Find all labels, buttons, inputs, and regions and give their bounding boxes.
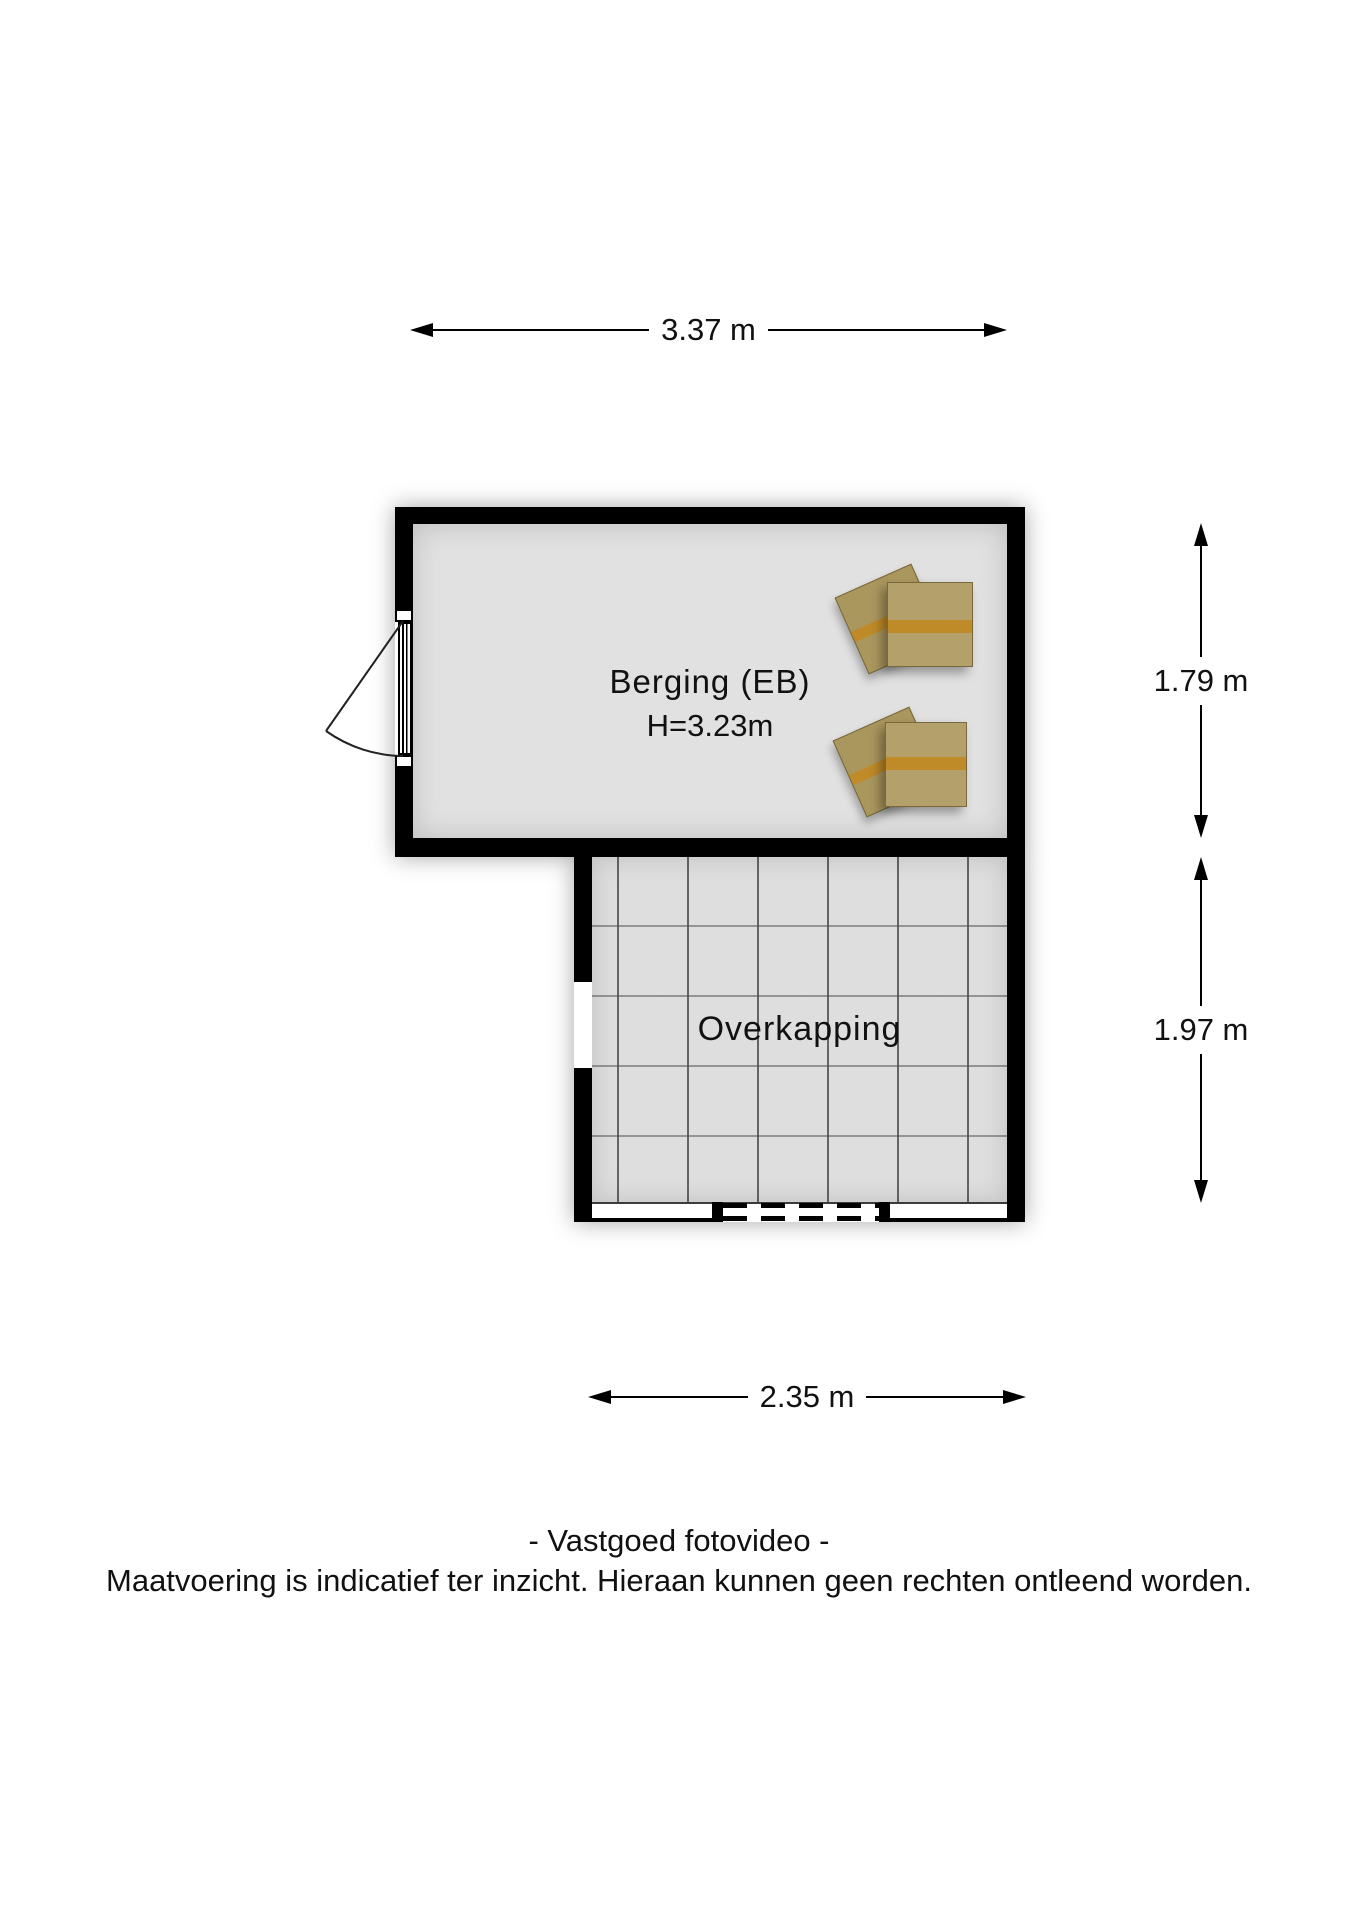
door-swing-arc-icon (250, 590, 420, 770)
arrowhead-up-icon (1194, 523, 1208, 546)
wall-right (1007, 507, 1025, 1222)
berging-room-label: Berging (EB) (413, 662, 1007, 702)
wall-top (395, 507, 1025, 524)
dimension-right-lower: 1.97 m (1140, 857, 1262, 1203)
berging-height-label: H=3.23m (413, 708, 1007, 744)
dimension-label-bottom: 2.35 m (748, 1381, 867, 1413)
open-edge-line-left (592, 1218, 716, 1222)
box-strap (886, 757, 966, 770)
footer: - Vastgoed fotovideo - Maatvoering is in… (0, 1521, 1358, 1601)
dimension-top: 3.37 m (410, 314, 1007, 346)
arrowhead-down-icon (1194, 1180, 1208, 1203)
arrowhead-left-icon (588, 1390, 611, 1404)
box-strap (888, 620, 972, 632)
open-edge-line-right (886, 1218, 1007, 1222)
edge-post-left (712, 1202, 723, 1222)
arrowhead-down-icon (1194, 815, 1208, 838)
wall-overkapping-left-lower (574, 1068, 592, 1222)
dimension-right-upper: 1.79 m (1140, 523, 1262, 838)
dimension-line (1200, 1054, 1202, 1180)
arrowhead-right-icon (1003, 1390, 1026, 1404)
footer-credit: - Vastgoed fotovideo - (0, 1521, 1358, 1561)
footer-disclaimer: Maatvoering is indicatief ter inzicht. H… (0, 1561, 1358, 1601)
arrowhead-right-icon (984, 323, 1007, 337)
sliding-panel-dashes-bottom (723, 1216, 879, 1221)
overkapping-room-label: Overkapping (592, 1008, 1007, 1050)
dimension-line (433, 329, 649, 331)
dimension-line (611, 1396, 748, 1398)
dimension-line (1200, 705, 1202, 816)
arrowhead-left-icon (410, 323, 433, 337)
dimension-label-right-upper: 1.79 m (1154, 657, 1249, 705)
floorplan-page: 3.37 m Berging (EB) H (0, 0, 1358, 1920)
sliding-panel-dashes-top (723, 1203, 879, 1208)
wall-overkapping-left-upper (574, 857, 592, 982)
dimension-label-top: 3.37 m (649, 314, 768, 346)
dimension-bottom: 2.35 m (588, 1381, 1026, 1413)
dimension-line (1200, 880, 1202, 1006)
dimension-line (768, 329, 984, 331)
arrowhead-up-icon (1194, 857, 1208, 880)
dimension-label-right-lower: 1.97 m (1154, 1006, 1249, 1054)
edge-post-right (879, 1202, 890, 1222)
storage-box-front (887, 582, 973, 667)
dimension-line (1200, 546, 1202, 657)
dimension-line (866, 1396, 1003, 1398)
wall-berging-bottom (395, 838, 1025, 857)
